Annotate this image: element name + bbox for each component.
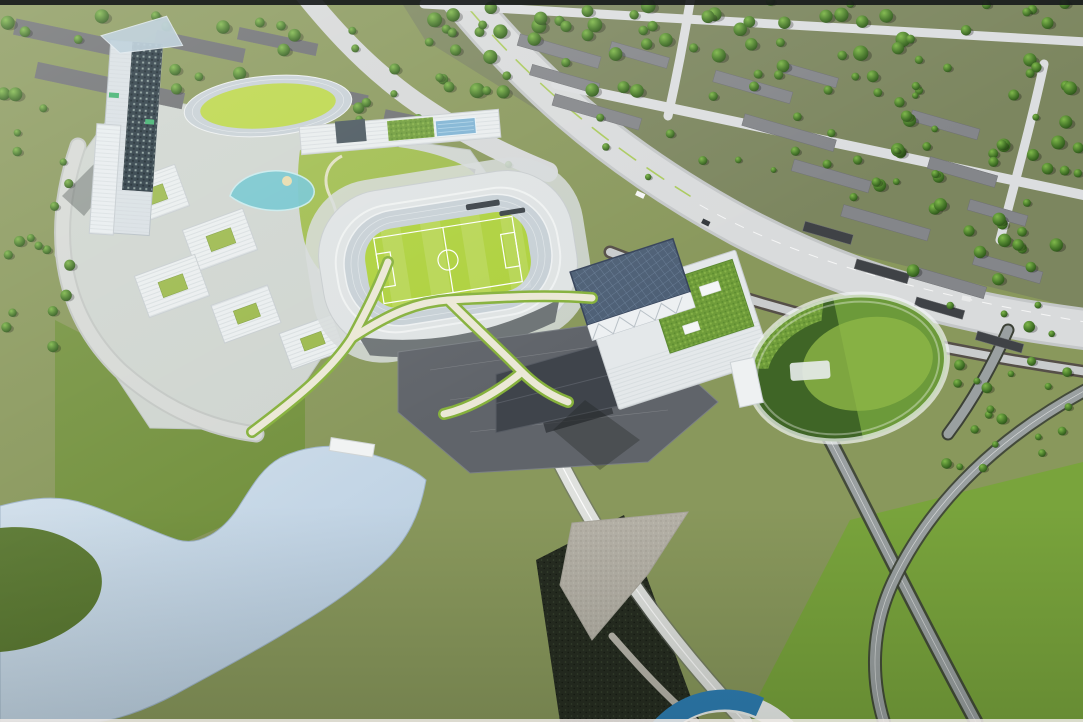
- top-edge-strip: [0, 0, 1083, 5]
- rendering-canvas: [0, 0, 1083, 722]
- aerial-rendering: [0, 0, 1083, 722]
- bottom-shade: [0, 0, 1083, 722]
